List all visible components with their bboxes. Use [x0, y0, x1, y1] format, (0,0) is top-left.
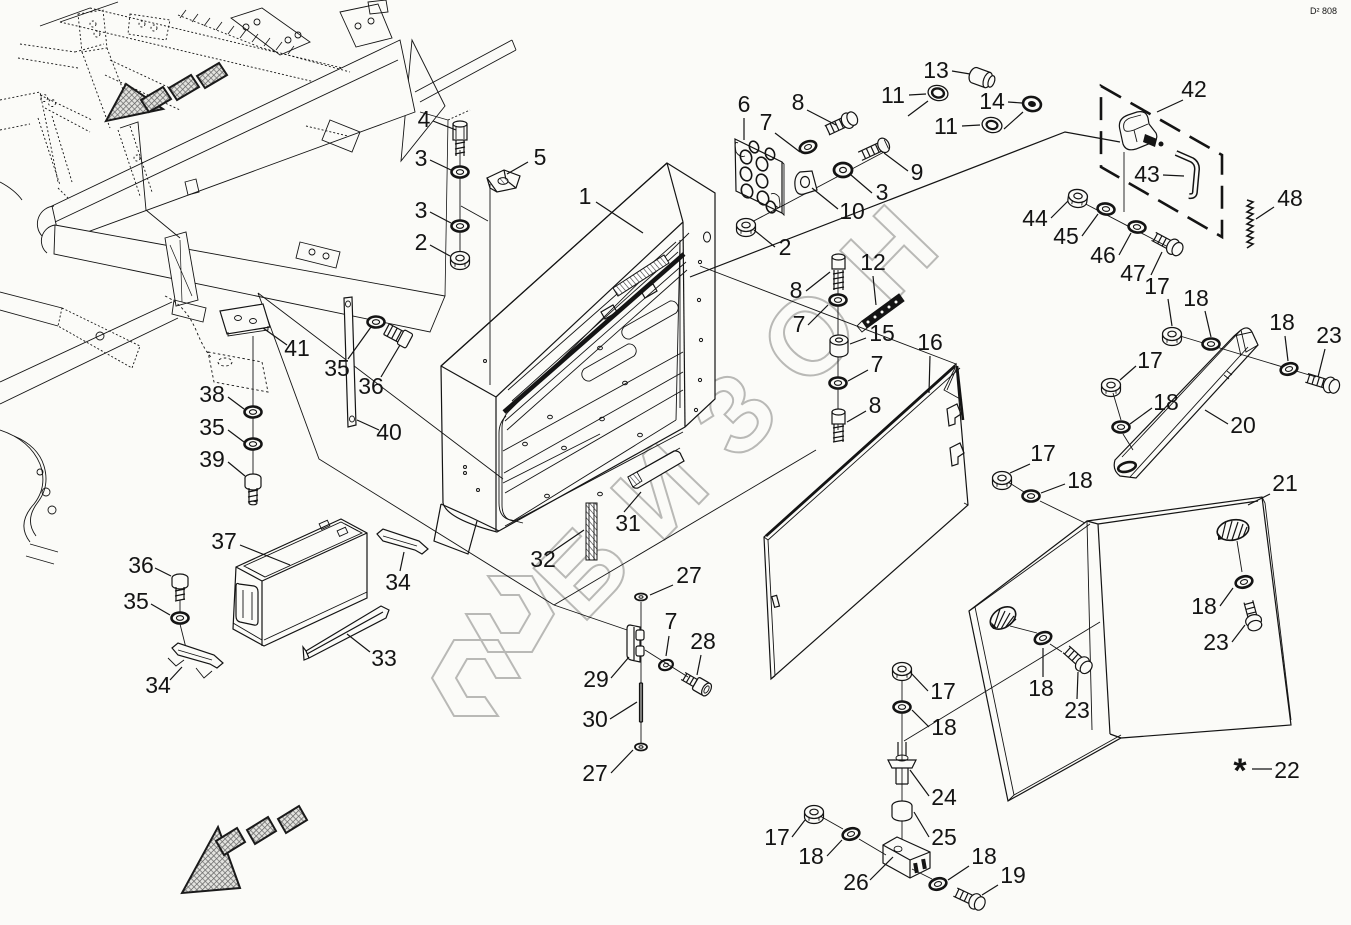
svg-text:34: 34: [145, 672, 171, 698]
svg-text:18: 18: [1183, 285, 1209, 311]
svg-text:13: 13: [923, 57, 949, 83]
svg-text:23: 23: [1064, 697, 1090, 723]
svg-text:17: 17: [1144, 273, 1170, 299]
svg-text:22: 22: [1274, 757, 1300, 783]
svg-text:48: 48: [1277, 185, 1303, 211]
svg-text:18: 18: [798, 843, 824, 869]
svg-text:15: 15: [869, 320, 895, 346]
svg-text:17: 17: [1030, 440, 1056, 466]
svg-text:39: 39: [199, 446, 225, 472]
svg-text:35: 35: [123, 588, 149, 614]
svg-text:20: 20: [1230, 412, 1256, 438]
svg-text:41: 41: [284, 335, 310, 361]
svg-text:7: 7: [760, 109, 773, 135]
svg-text:18: 18: [1269, 309, 1295, 335]
svg-text:42: 42: [1181, 76, 1207, 102]
svg-text:17: 17: [764, 824, 790, 850]
svg-text:D² 808: D² 808: [1310, 6, 1337, 16]
svg-text:17: 17: [930, 678, 956, 704]
svg-text:3: 3: [415, 145, 428, 171]
svg-text:29: 29: [583, 666, 609, 692]
svg-text:2: 2: [415, 229, 428, 255]
svg-text:12: 12: [860, 249, 886, 275]
svg-text:40: 40: [376, 419, 402, 445]
svg-text:23: 23: [1316, 322, 1342, 348]
svg-text:32: 32: [530, 546, 556, 572]
svg-text:7: 7: [871, 351, 884, 377]
svg-text:18: 18: [971, 843, 997, 869]
svg-text:17: 17: [1137, 347, 1163, 373]
svg-text:18: 18: [1028, 675, 1054, 701]
svg-text:3: 3: [876, 179, 889, 205]
svg-text:44: 44: [1022, 205, 1048, 231]
svg-text:16: 16: [917, 329, 943, 355]
svg-text:21: 21: [1272, 470, 1298, 496]
svg-text:37: 37: [211, 528, 237, 554]
svg-text:34: 34: [385, 569, 411, 595]
svg-text:9: 9: [911, 159, 924, 185]
svg-text:8: 8: [869, 392, 882, 418]
svg-text:35: 35: [324, 355, 350, 381]
svg-text:35: 35: [199, 414, 225, 440]
svg-text:6: 6: [738, 91, 751, 117]
svg-text:27: 27: [582, 760, 608, 786]
svg-text:38: 38: [199, 381, 225, 407]
svg-text:18: 18: [931, 714, 957, 740]
svg-text:18: 18: [1153, 389, 1179, 415]
svg-text:43: 43: [1134, 161, 1160, 187]
svg-text:4: 4: [418, 106, 431, 132]
svg-text:5: 5: [534, 144, 547, 170]
svg-text:47: 47: [1120, 260, 1146, 286]
svg-text:25: 25: [931, 824, 957, 850]
svg-text:45: 45: [1053, 223, 1079, 249]
svg-text:11: 11: [881, 82, 905, 108]
svg-text:36: 36: [128, 552, 154, 578]
svg-text:8: 8: [790, 277, 803, 303]
svg-text:31: 31: [615, 510, 641, 536]
svg-text:33: 33: [371, 645, 397, 671]
svg-text:27: 27: [676, 562, 702, 588]
svg-text:18: 18: [1191, 593, 1217, 619]
svg-text:8: 8: [792, 89, 805, 115]
svg-text:2: 2: [779, 234, 792, 260]
svg-text:1: 1: [579, 183, 592, 209]
svg-text:36: 36: [358, 373, 384, 399]
svg-text:23: 23: [1203, 629, 1229, 655]
svg-text:24: 24: [931, 784, 957, 810]
svg-text:19: 19: [1000, 862, 1026, 888]
svg-text:46: 46: [1090, 242, 1116, 268]
svg-text:14: 14: [979, 88, 1005, 114]
svg-text:7: 7: [665, 608, 678, 634]
svg-text:11: 11: [934, 113, 958, 139]
svg-text:28: 28: [690, 628, 716, 654]
svg-text:7: 7: [793, 311, 806, 337]
svg-text:10: 10: [839, 198, 865, 224]
svg-text:26: 26: [843, 869, 869, 895]
svg-text:*: *: [1233, 752, 1247, 790]
svg-text:3: 3: [415, 197, 428, 223]
svg-text:30: 30: [582, 706, 608, 732]
svg-text:18: 18: [1067, 467, 1093, 493]
